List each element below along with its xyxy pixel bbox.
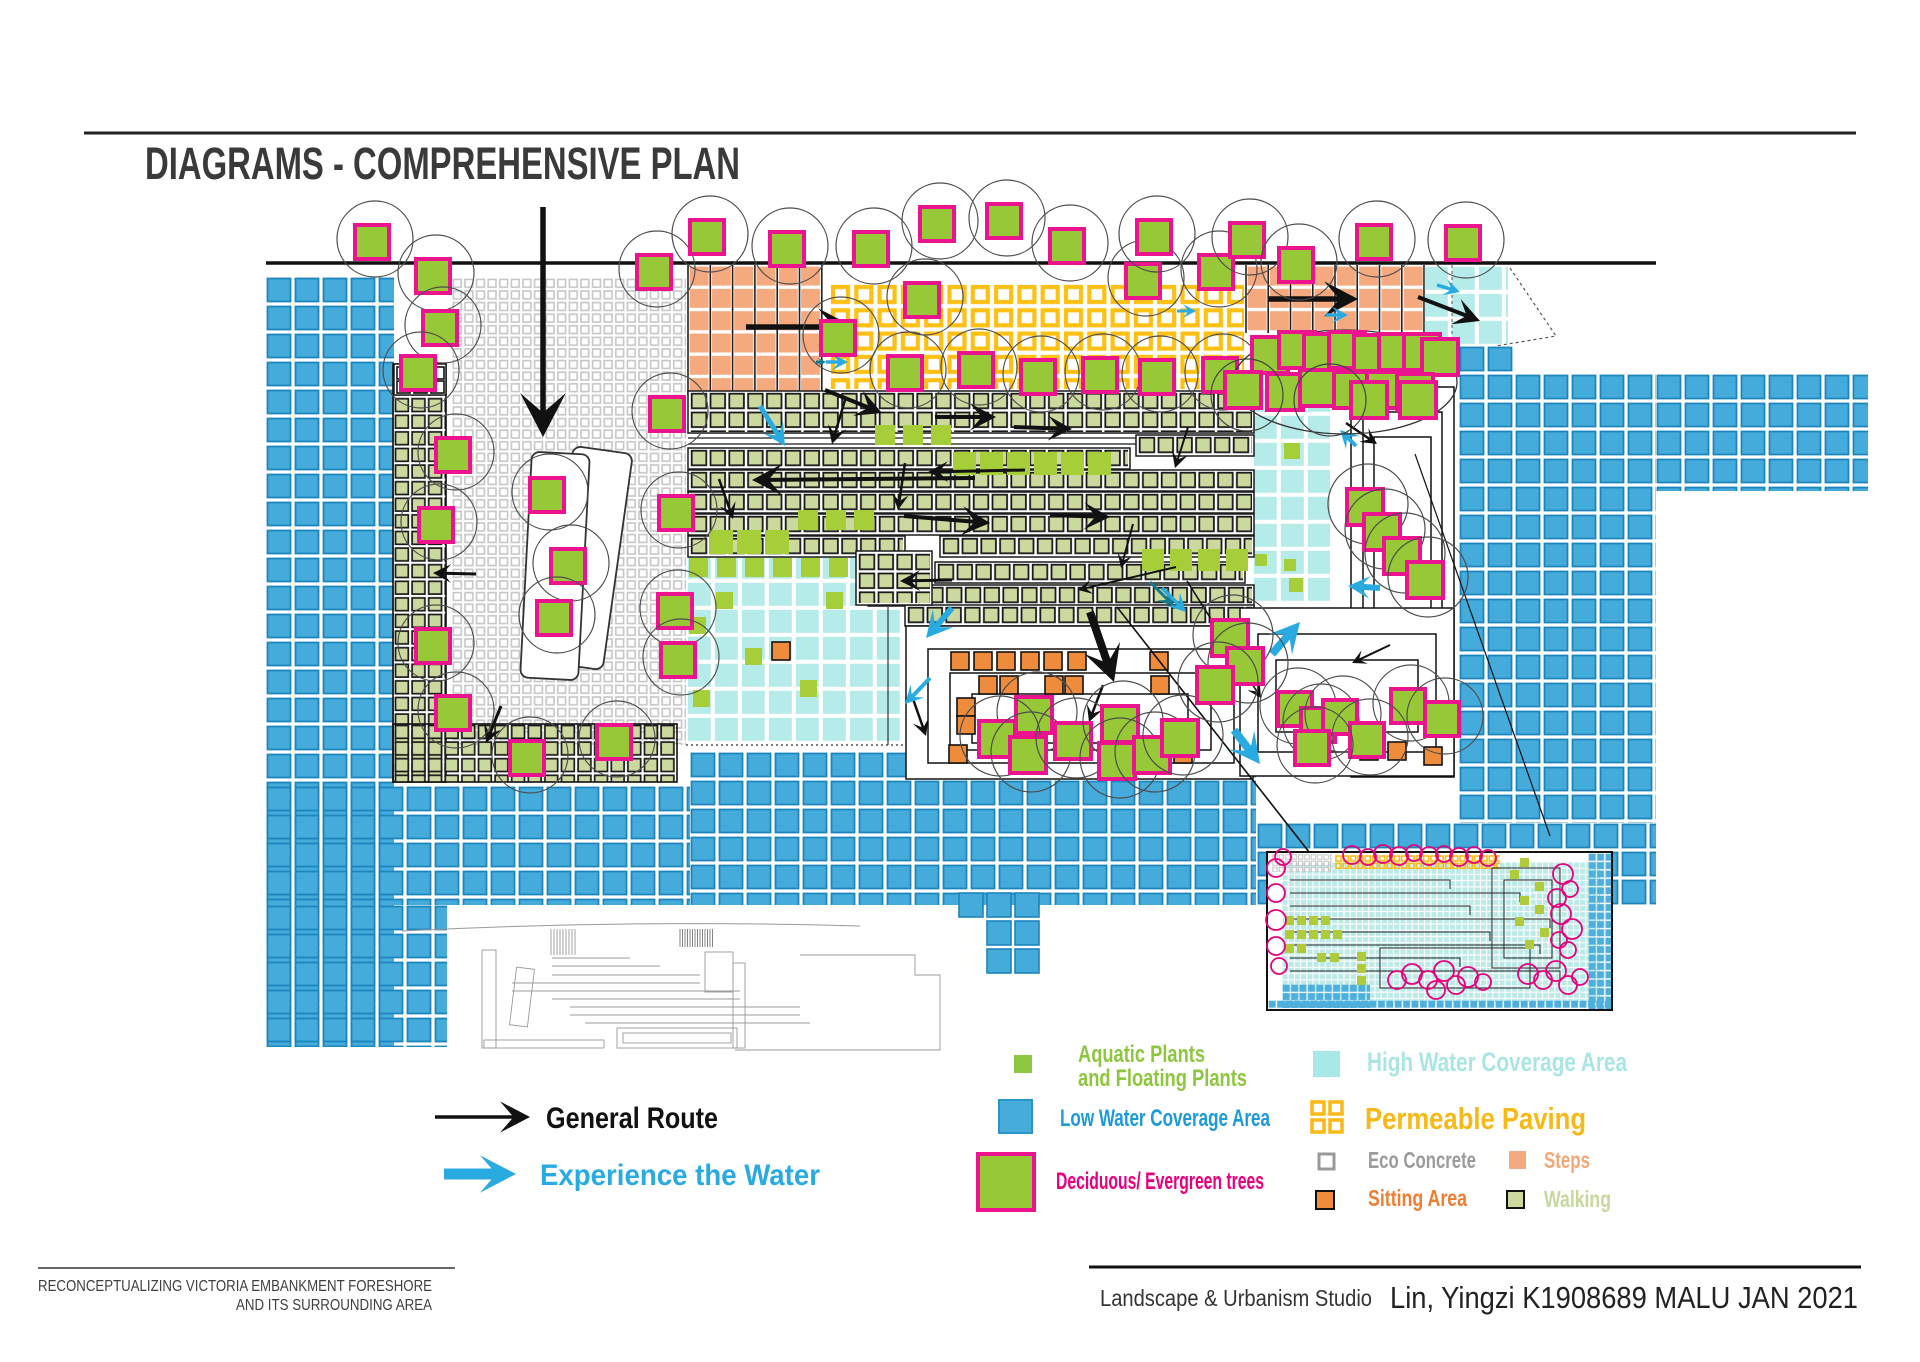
svg-text:Deciduous/ Evergreen trees: Deciduous/ Evergreen trees	[1056, 1168, 1264, 1195]
svg-text:Low Water Coverage Area: Low Water Coverage Area	[1060, 1105, 1270, 1132]
svg-text:General Route: General Route	[546, 1102, 718, 1135]
svg-text:Experience the Water: Experience the Water	[540, 1159, 820, 1192]
svg-text:Sitting Area: Sitting Area	[1368, 1185, 1467, 1211]
svg-text:Steps: Steps	[1544, 1147, 1590, 1173]
svg-text:Permeable Paving: Permeable Paving	[1365, 1101, 1586, 1136]
svg-text:Landscape & Urbanism Studio: Landscape & Urbanism Studio	[1100, 1285, 1372, 1311]
svg-text:Eco Concrete: Eco Concrete	[1368, 1147, 1476, 1173]
svg-text:Walking: Walking	[1544, 1186, 1611, 1212]
svg-text:RECONCEPTUALIZING VICTORIA EMB: RECONCEPTUALIZING VICTORIA EMBANKMENT FO…	[38, 1278, 432, 1295]
svg-text:High Water Coverage Area: High Water Coverage Area	[1367, 1047, 1628, 1077]
svg-text:Lin, Yingzi K1908689 MALU JAN: Lin, Yingzi K1908689 MALU JAN 2021	[1390, 1280, 1858, 1315]
svg-text:Aquatic Plants: Aquatic Plants	[1078, 1041, 1205, 1068]
svg-text:and Floating Plants: and Floating Plants	[1078, 1065, 1247, 1092]
svg-text:AND ITS SURROUNDING AREA: AND ITS SURROUNDING AREA	[236, 1297, 432, 1314]
svg-text:DIAGRAMS - COMPREHENSIVE PLAN: DIAGRAMS - COMPREHENSIVE PLAN	[145, 138, 740, 189]
